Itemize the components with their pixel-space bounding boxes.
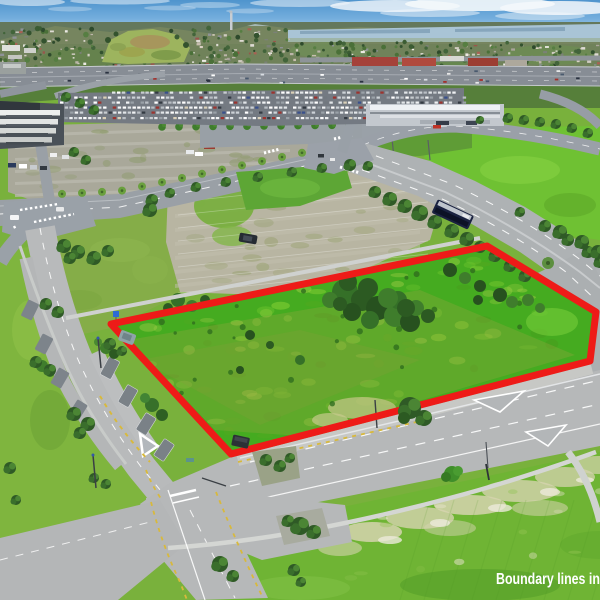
svg-text:Boundary lines indicative: Boundary lines indicative (496, 571, 600, 588)
